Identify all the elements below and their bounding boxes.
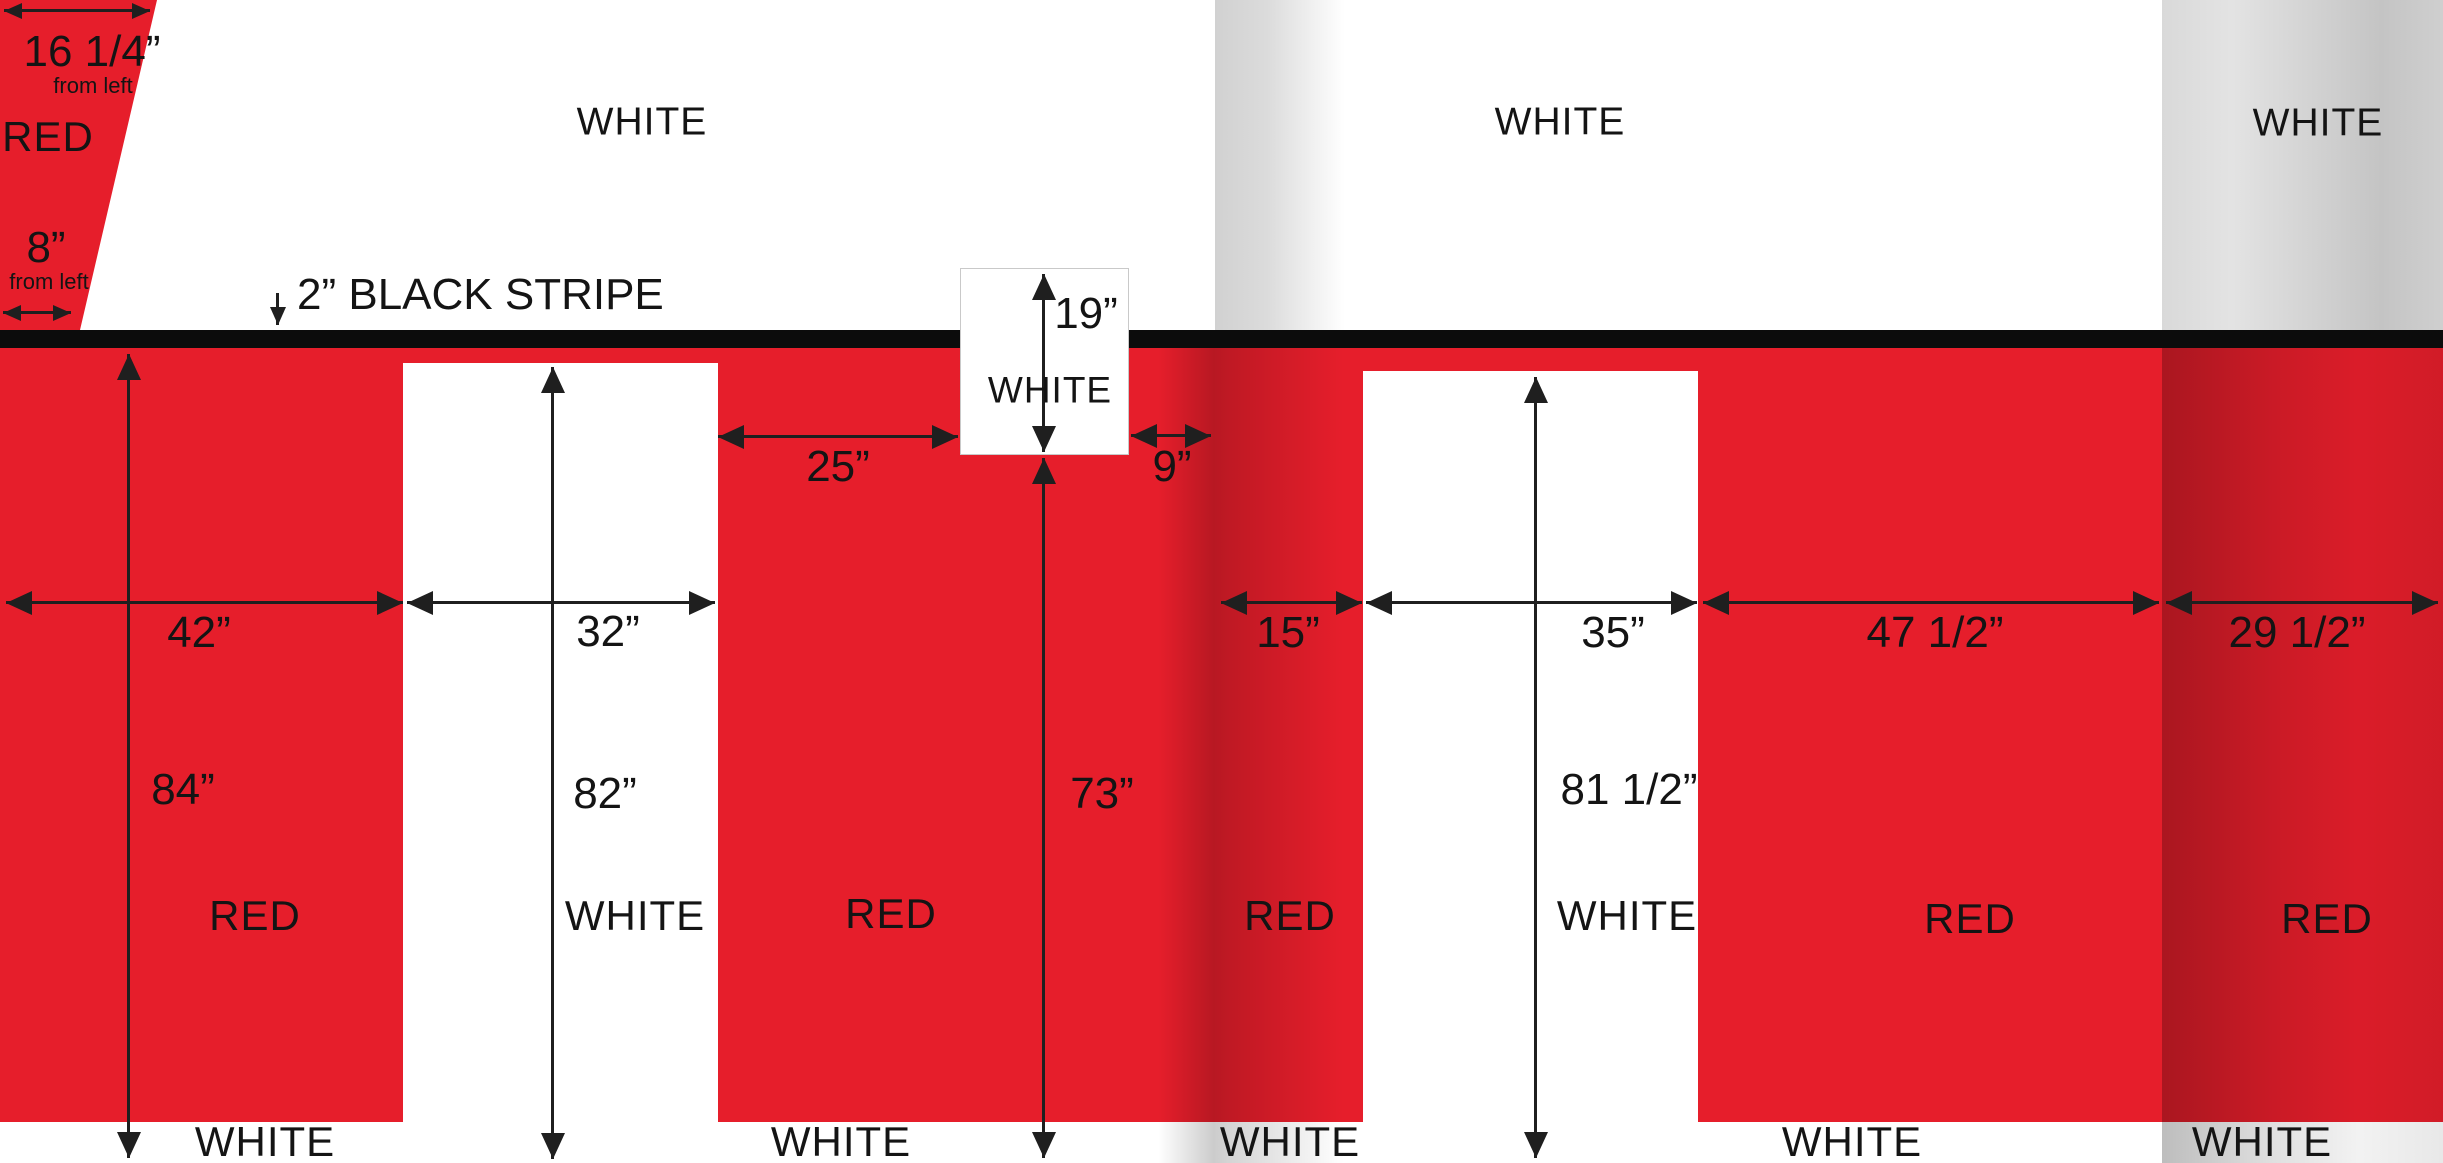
dim-35-arrow <box>1366 601 1697 604</box>
dim-42-label: 42” <box>167 611 231 655</box>
dim-32-arrow <box>407 601 715 604</box>
arrowhead-left-icon <box>718 425 744 449</box>
corner-from-left-bottom-label: from left <box>9 271 88 293</box>
arrowhead-down-icon <box>541 1133 565 1159</box>
dim-47-arrow <box>1703 601 2159 604</box>
bottom-white-label-2: WHITE <box>771 1121 911 1163</box>
arrowhead-right-icon <box>689 591 715 615</box>
arrowhead-down-icon <box>270 307 286 325</box>
dim-19-arrow <box>1042 274 1045 452</box>
arrowhead-left-icon <box>6 591 32 615</box>
dim-84-arrow <box>127 354 130 1158</box>
dim-29-label: 29 1/2” <box>2229 611 2366 655</box>
corner-bottom-width-arrow <box>3 311 71 314</box>
top-white-label-3: WHITE <box>2253 104 2384 143</box>
dim-84-label: 84” <box>151 768 215 812</box>
top-white-label-1: WHITE <box>577 103 708 142</box>
arrowhead-right-icon <box>1336 591 1362 615</box>
arrowhead-right-icon <box>2133 591 2159 615</box>
wall-paint-spec-diagram: WHITE WHITE WHITE 2” BLACK STRIPE 16 1/4… <box>0 0 2443 1163</box>
stripe-pointer-arrow <box>276 293 279 325</box>
arrowhead-left-icon <box>1366 591 1392 615</box>
arrowhead-down-icon <box>1032 1132 1056 1158</box>
arrowhead-down-icon <box>1032 426 1056 452</box>
dim-19-label: 19” <box>1054 292 1118 336</box>
zone-red-right-label: RED <box>2281 898 2373 940</box>
dim-25-label: 25” <box>806 445 870 489</box>
arrowhead-right-icon <box>377 591 403 615</box>
dim-81-label: 81 1/2” <box>1561 768 1698 812</box>
arrowhead-right-icon <box>932 425 958 449</box>
bottom-white-label-4: WHITE <box>1782 1121 1922 1163</box>
dim-82-arrow <box>551 367 554 1159</box>
zone-red-15-label: RED <box>1244 895 1336 937</box>
zone-red-47-label: RED <box>1924 898 2016 940</box>
arrowhead-down-icon <box>1524 1132 1548 1158</box>
bottom-white-label-5: WHITE <box>2192 1121 2332 1163</box>
bottom-white-label-1: WHITE <box>195 1121 335 1163</box>
arrowhead-left-icon <box>3 305 21 321</box>
arrowhead-up-icon <box>541 367 565 393</box>
zone-white-panel1-label: WHITE <box>565 895 705 937</box>
corner-top-width-arrow <box>4 9 150 12</box>
dim-73-label: 73” <box>1070 772 1134 816</box>
box-white-label: WHITE <box>988 372 1112 409</box>
bottom-white-label-3: WHITE <box>1220 1121 1360 1163</box>
corner-width-bottom-label: 8” <box>26 226 65 270</box>
dim-9-arrow <box>1131 434 1211 437</box>
dim-47-label: 47 1/2” <box>1867 611 2004 655</box>
dim-32-label: 32” <box>576 610 640 654</box>
arrowhead-right-icon <box>1671 591 1697 615</box>
arrowhead-right-icon <box>132 3 150 19</box>
dim-73-arrow <box>1042 458 1045 1158</box>
corner-red-label: RED <box>2 116 94 158</box>
dim-82-label: 82” <box>573 772 637 816</box>
right-fold-shadow-top <box>2162 0 2443 330</box>
top-white-label-2: WHITE <box>1495 103 1626 142</box>
dim-15-label: 15” <box>1256 611 1320 655</box>
dim-81-arrow <box>1534 377 1537 1158</box>
left-fold-shadow-top <box>1215 0 1345 330</box>
zone-red-left-label: RED <box>209 895 301 937</box>
white-panel-32 <box>403 363 718 1163</box>
arrowhead-right-icon <box>2412 591 2438 615</box>
dim-29-arrow <box>2166 601 2438 604</box>
dim-42-arrow <box>6 601 403 604</box>
arrowhead-left-icon <box>1221 591 1247 615</box>
arrowhead-up-icon <box>1032 274 1056 300</box>
dim-15-arrow <box>1221 601 1362 604</box>
arrowhead-left-icon <box>4 3 22 19</box>
arrowhead-right-icon <box>53 305 71 321</box>
stripe-annotation: 2” BLACK STRIPE <box>297 273 664 317</box>
arrowhead-left-icon <box>1703 591 1729 615</box>
zone-red-mid-label: RED <box>845 893 937 935</box>
arrowhead-up-icon <box>1032 458 1056 484</box>
black-stripe <box>0 330 2443 348</box>
arrowhead-left-icon <box>2166 591 2192 615</box>
dim-9-label: 9” <box>1152 445 1191 489</box>
dim-35-label: 35” <box>1581 611 1645 655</box>
arrowhead-left-icon <box>407 591 433 615</box>
arrowhead-up-icon <box>117 354 141 380</box>
corner-width-top-label: 16 1/4” <box>24 30 161 74</box>
dim-25-arrow <box>718 435 958 438</box>
corner-from-left-top-label: from left <box>53 75 132 97</box>
zone-white-panel2-label: WHITE <box>1557 895 1697 937</box>
arrowhead-up-icon <box>1524 377 1548 403</box>
right-fold-shadow-bottom <box>2162 348 2443 1163</box>
arrowhead-down-icon <box>117 1132 141 1158</box>
